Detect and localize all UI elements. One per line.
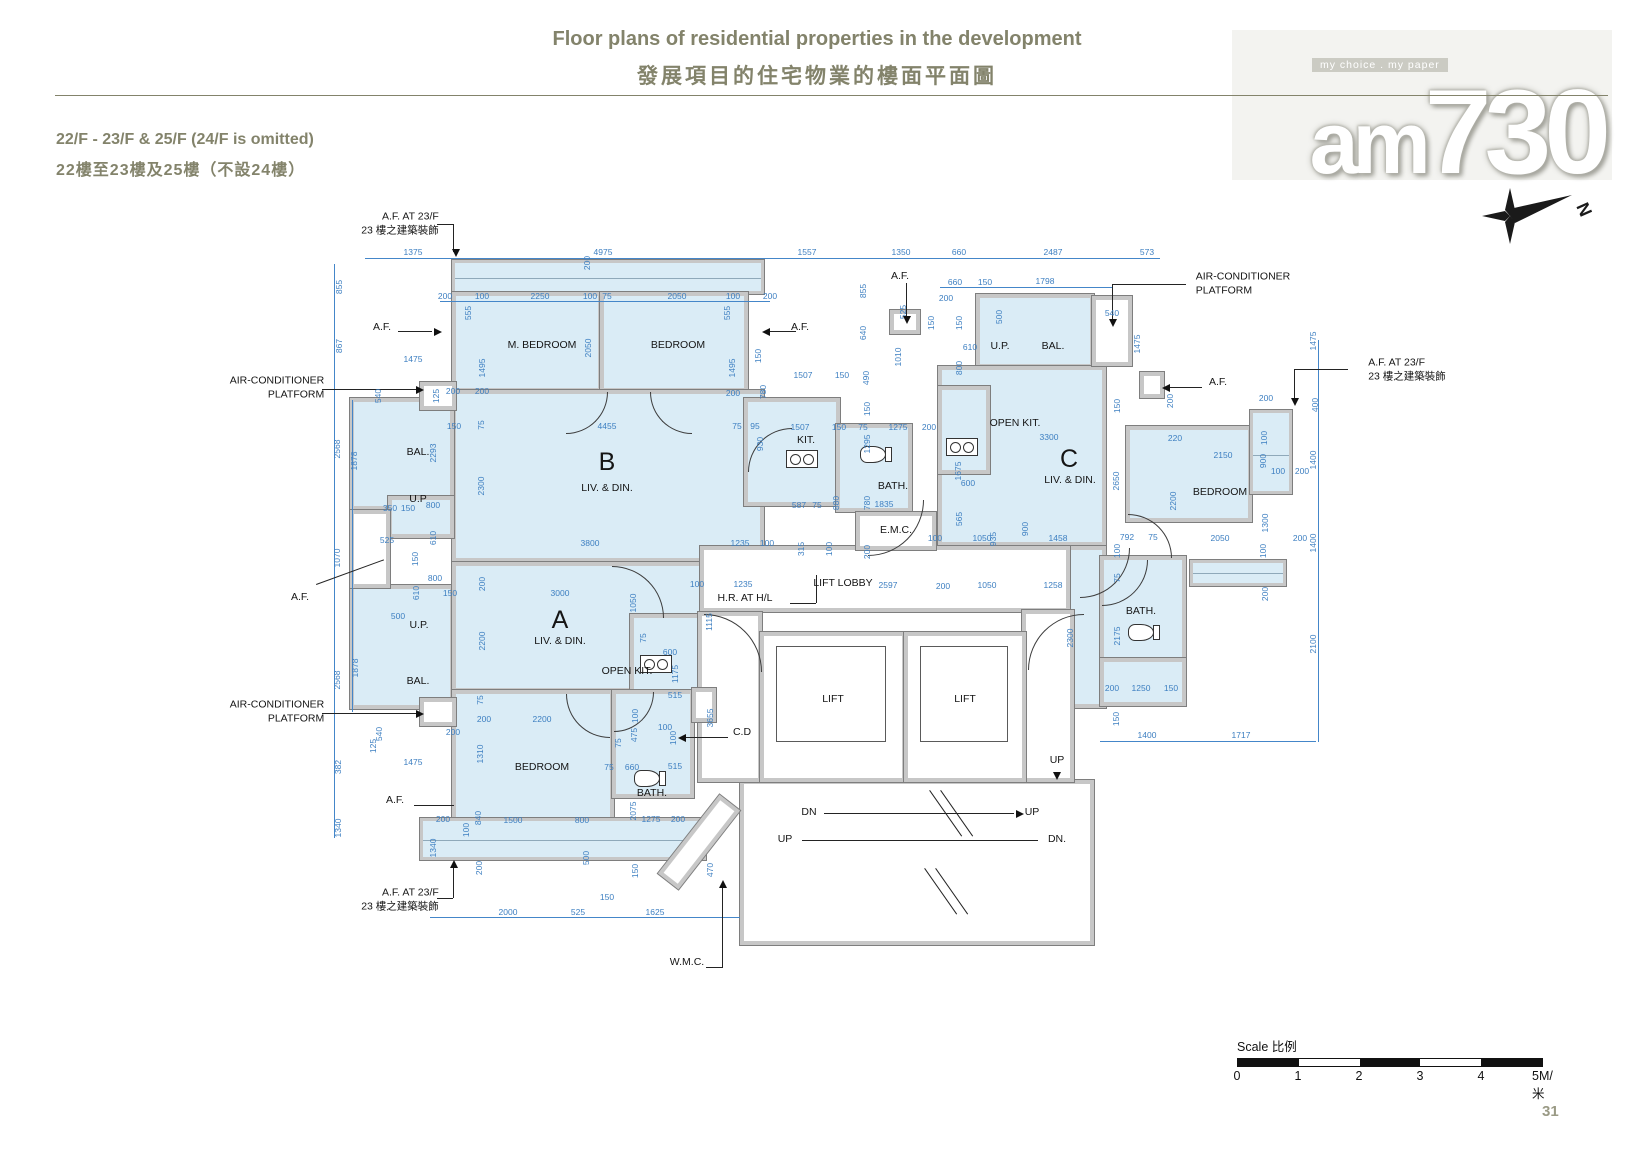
dimension-label: 500 — [581, 851, 591, 865]
leader-line — [437, 224, 453, 225]
leader-line — [824, 813, 1014, 814]
dimension-label: 200 — [922, 422, 936, 432]
dimension-label: 382 — [333, 760, 343, 774]
dimension-label: 2597 — [879, 580, 898, 590]
plan-label: AIR-CONDITIONER PLATFORM — [1196, 270, 1291, 297]
plan-label: BEDROOM — [515, 761, 569, 775]
dimension-label: 200 — [936, 581, 950, 591]
dimension-label: 150 — [1112, 399, 1122, 413]
dimension-label: 200 — [446, 386, 460, 396]
dimension-label: 1235 — [734, 579, 753, 589]
dimension-line — [430, 917, 740, 918]
ac-platform-left-bottom — [420, 698, 456, 726]
dimension-label: 3300 — [1040, 432, 1059, 442]
dimension-label: 660 — [948, 277, 962, 287]
dimension-label: 150 — [978, 277, 992, 287]
dimension-label: 2175 — [1112, 627, 1122, 646]
scalebar-tick: 3 — [1417, 1069, 1424, 1083]
dimension-label: 2050 — [1211, 533, 1230, 543]
plan-label: B — [599, 446, 616, 479]
plan-label: BEDROOM — [651, 339, 705, 353]
dimension-line — [940, 287, 1112, 288]
plan-label: LIV. & DIN. — [534, 635, 586, 649]
dimension-label: 800 — [575, 815, 589, 825]
dimension-label: 200 — [726, 388, 740, 398]
dimension-label: 4975 — [594, 247, 613, 257]
dimension-label: 1275 — [889, 422, 908, 432]
bedroom-c — [1126, 426, 1252, 522]
dimension-label: 1507 — [791, 422, 810, 432]
dimension-label: 792 — [1120, 532, 1134, 542]
dimension-label: 1375 — [404, 247, 423, 257]
arrowhead-icon — [450, 860, 458, 868]
dimension-label: 100 — [583, 291, 597, 301]
plan-label: M. BEDROOM — [508, 339, 577, 353]
dimension-label: 660 — [952, 247, 966, 257]
plan-label: DN. — [1048, 833, 1066, 847]
scalebar-tick: 2 — [1356, 1069, 1363, 1083]
dimension-label: 125 — [368, 739, 378, 753]
arrowhead-icon — [416, 386, 424, 394]
dimension-label: 100 — [824, 542, 834, 556]
dimension-label: 100 — [1112, 544, 1122, 558]
dimension-label: 1458 — [1049, 533, 1068, 543]
dimension-label: 200 — [1260, 587, 1270, 601]
header-divider — [55, 95, 1608, 96]
dimension-label: 100 — [1259, 431, 1269, 445]
dimension-label: 800 — [954, 361, 964, 375]
arrowhead-icon — [1016, 810, 1024, 818]
leader-line — [1294, 369, 1348, 370]
plan-label: U.P. — [409, 619, 428, 633]
page-number: 31 — [1542, 1103, 1559, 1120]
dimension-label: 150 — [630, 864, 640, 878]
plan-label: BATH. — [637, 787, 667, 801]
dimension-label: 1625 — [646, 907, 665, 917]
arrowhead-icon — [1291, 398, 1299, 406]
dimension-label: 1300 — [1260, 514, 1270, 533]
dimension-label: 470 — [705, 863, 715, 877]
scalebar-ticks: 012345M/米 — [1237, 1067, 1577, 1083]
plan-label: BATH. — [878, 480, 908, 494]
am730-logo: my choice . my paper am730 — [1232, 30, 1612, 180]
dimension-label: 1310 — [475, 745, 485, 764]
arrowhead-icon — [719, 880, 727, 888]
north-arrow: N — [1438, 178, 1608, 262]
plan-label: UP — [1025, 806, 1040, 820]
bay-window-right-c — [1250, 410, 1292, 494]
dimension-label: 855 — [334, 280, 344, 294]
dimension-label: 75 — [638, 633, 648, 642]
plan-label: LIFT — [822, 693, 844, 707]
leader-line — [1112, 284, 1186, 285]
dimension-label: 2293 — [428, 444, 438, 463]
dimension-label: 2200 — [1168, 492, 1178, 511]
plan-label: OPEN KIT. — [990, 417, 1041, 431]
plan-label: LIV. & DIN. — [581, 482, 633, 496]
dimension-label: 800 — [426, 500, 440, 510]
leader-line — [398, 331, 432, 332]
dimension-label: 150 — [753, 349, 763, 363]
dimension-label: 935 — [988, 532, 998, 546]
scalebar-segment — [1481, 1059, 1542, 1066]
dimension-label: 150 — [447, 421, 461, 431]
dimension-label: 200 — [438, 291, 452, 301]
dimension-label: 150 — [832, 422, 846, 432]
leader-line — [1166, 387, 1202, 388]
dimension-label: 1400 — [1308, 451, 1318, 470]
dimension-label: 1400 — [1138, 730, 1157, 740]
bay-window-bottom-c — [1190, 560, 1286, 586]
leader-line — [1294, 369, 1295, 401]
dimension-label: 1275 — [642, 814, 661, 824]
dimension-label: 930 — [755, 437, 765, 451]
dimension-label: 610 — [963, 342, 977, 352]
plan-label: A.F. — [386, 794, 404, 808]
dimension-label: 500 — [994, 310, 1004, 324]
arrowhead-icon — [434, 328, 442, 336]
plan-label: A — [552, 604, 569, 637]
toilet-icon — [1128, 624, 1154, 641]
leader-line — [322, 713, 418, 714]
scalebar-tick: 1 — [1295, 1069, 1302, 1083]
dimension-label: 75 — [475, 695, 485, 704]
stove-icon — [786, 450, 818, 468]
dimension-label: 515 — [668, 690, 682, 700]
dimension-label: 100 — [475, 291, 489, 301]
dimension-label: 610 — [428, 531, 438, 545]
plan-label: BEDROOM — [1193, 486, 1247, 500]
dimension-label: 100 — [928, 533, 942, 543]
dimension-label: 540 — [1105, 308, 1119, 318]
dimension-label: 1878 — [349, 452, 359, 471]
dimension-label: 2650 — [1111, 472, 1121, 491]
scalebar-end-label: 5M/米 — [1532, 1069, 1562, 1102]
dimension-label: 100 — [1258, 544, 1268, 558]
scalebar-segment — [1420, 1059, 1481, 1066]
plan-label: BAL. — [1042, 340, 1065, 354]
dimension-label: 610 — [411, 586, 421, 600]
plan-label: U.P — [409, 493, 427, 507]
plan-label: A.F. AT 23/F 23 樓之建築裝飾 — [361, 886, 439, 913]
dimension-label: 200 — [1105, 683, 1119, 693]
dimension-label: 1250 — [1132, 683, 1151, 693]
dimension-label: 125 — [431, 389, 441, 403]
dimension-label: 200 — [446, 727, 460, 737]
dimension-label: 75 — [613, 738, 623, 747]
arrowhead-icon — [762, 328, 770, 336]
dimension-label: 75 — [812, 500, 821, 510]
dimension-label: 150 — [954, 316, 964, 330]
dimension-label: 1475 — [404, 354, 423, 364]
plan-label: H.R. AT H/L — [717, 592, 772, 606]
dimension-label: 100 — [630, 709, 640, 723]
dimension-label: 100 — [1271, 466, 1285, 476]
dimension-label: 2300 — [1065, 629, 1075, 648]
dimension-label: 1258 — [1044, 580, 1063, 590]
dimension-label: 900 — [1258, 454, 1268, 468]
dimension-label: 75 — [1112, 573, 1122, 582]
dimension-label: 475 — [629, 728, 639, 742]
dimension-label: 573 — [1140, 247, 1154, 257]
dimension-label: 600 — [961, 478, 975, 488]
plan-label: OPEN KIT. — [602, 665, 653, 679]
dimension-label: 100 — [690, 579, 704, 589]
plan-label: E.M.C. — [880, 524, 912, 538]
dimension-label: 200 — [862, 545, 872, 559]
dimension-label: 1495 — [477, 359, 487, 378]
plan-label: BAL. — [407, 446, 430, 460]
leader-line — [322, 389, 418, 390]
plan-label: AIR-CONDITIONER PLATFORM — [230, 374, 325, 401]
dimension-label: 1235 — [731, 538, 750, 548]
dimension-label: 1878 — [350, 659, 360, 678]
plan-label: A.F. — [291, 591, 309, 605]
dimension-label: 780 — [862, 496, 872, 510]
balcony-b — [350, 398, 454, 510]
plan-label: C — [1060, 443, 1078, 476]
arrowhead-icon — [452, 249, 460, 257]
dimension-label: 565 — [954, 512, 964, 526]
leader-line — [802, 840, 1038, 841]
dimension-label: 150 — [1111, 712, 1121, 726]
dimension-label: 600 — [663, 647, 677, 657]
dimension-line — [440, 301, 770, 302]
dimension-label: 2050 — [583, 339, 593, 358]
dimension-label: 95 — [750, 421, 759, 431]
arrowhead-icon — [903, 316, 911, 324]
plan-label: LIFT — [954, 693, 976, 707]
dimension-label: 1295 — [862, 435, 872, 454]
dimension-label: 1070 — [332, 549, 342, 568]
dimension-label: 2568 — [332, 440, 342, 459]
bay-window-top-b — [452, 260, 764, 294]
dimension-label: 200 — [763, 291, 777, 301]
arrowhead-icon — [678, 734, 686, 742]
plan-label: A.F. — [373, 321, 391, 335]
plan-label: A.F. — [791, 321, 809, 335]
dimension-label: 1115 — [704, 613, 714, 631]
dimension-label: 400 — [1310, 398, 1320, 412]
dimension-label: 2050 — [668, 291, 687, 301]
stove-icon — [946, 438, 978, 456]
dimension-label: 2000 — [499, 907, 518, 917]
dimension-label: 1400 — [1308, 534, 1318, 553]
dimension-label: 75 — [476, 420, 486, 429]
leader-line — [722, 884, 723, 968]
dimension-label: 150 — [862, 402, 872, 416]
plan-label: UP — [778, 833, 793, 847]
dimension-label: 200 — [477, 577, 487, 591]
af-fin-c-right — [1140, 372, 1164, 398]
dimension-label: 867 — [334, 339, 344, 353]
dimension-label: 2487 — [1044, 247, 1063, 257]
dimension-label: 75 — [732, 421, 741, 431]
dimension-label: 525 — [380, 535, 394, 545]
plan-label: KIT. — [797, 434, 815, 448]
leader-line — [453, 224, 454, 252]
scalebar-label: Scale 比例 — [1237, 1036, 1597, 1055]
dimension-label: 3000 — [551, 588, 570, 598]
plan-label: A.F. AT 23/F 23 樓之建築裝飾 — [1368, 356, 1446, 383]
scalebar: Scale 比例 012345M/米 — [1237, 1036, 1597, 1083]
leader-line — [706, 967, 722, 968]
leader-line — [790, 603, 816, 604]
dimension-label: 1475 — [404, 757, 423, 767]
dimension-label: 200 — [939, 293, 953, 303]
dimension-label: 75 — [604, 762, 613, 772]
dimension-label: 100 — [668, 731, 678, 745]
dimension-label: 315 — [796, 542, 806, 556]
scalebar-segment — [1238, 1059, 1299, 1066]
af-platform-left — [350, 510, 390, 588]
plan-label: A.F. — [1209, 376, 1227, 390]
dimension-label: 640 — [858, 326, 868, 340]
plan-label: BATH. — [1126, 605, 1156, 619]
dimension-label: 1175 — [670, 665, 680, 683]
dimension-label: 1495 — [727, 359, 737, 378]
dimension-label: 800 — [428, 573, 442, 583]
dimension-label: 200 — [1259, 393, 1273, 403]
dimension-label: 855 — [858, 284, 868, 298]
dimension-label: 150 — [926, 316, 936, 330]
dimension-label: 900 — [1020, 522, 1030, 536]
dimension-label: 555 — [722, 306, 732, 320]
dimension-line — [365, 258, 1160, 259]
dimension-label: 150 — [600, 892, 614, 902]
dimension-label: 4455 — [598, 421, 617, 431]
dimension-label: 1717 — [1232, 730, 1251, 740]
dimension-label: 555 — [463, 306, 473, 320]
scalebar-tick: 4 — [1478, 1069, 1485, 1083]
dimension-label: 150 — [443, 588, 457, 598]
plan-label: A.F. AT 23/F 23 樓之建築裝飾 — [361, 210, 439, 237]
logo-brand: am730 — [1310, 86, 1604, 180]
north-star-spike — [1482, 211, 1510, 221]
plan-label: LIV. & DIN. — [1044, 474, 1096, 488]
arrowhead-icon — [1162, 384, 1170, 392]
dimension-label: 200 — [436, 814, 450, 824]
dimension-label: 2150 — [1214, 450, 1233, 460]
store-below-bath-c — [1100, 658, 1186, 706]
dimension-label: 200 — [1165, 394, 1175, 408]
balcony-c — [976, 294, 1094, 368]
dimension-label: 75 — [858, 422, 867, 432]
dimension-label: 840 — [473, 811, 483, 825]
dimension-label: 100 — [461, 823, 471, 837]
plan-label: DN — [801, 806, 816, 820]
dimension-label: 150 — [835, 370, 849, 380]
dimension-label: 3655 — [705, 709, 715, 728]
dimension-label: 515 — [668, 761, 682, 771]
scalebar-tick: 0 — [1234, 1069, 1241, 1083]
dimension-label: 200 — [474, 861, 484, 875]
dimension-label: 880 — [831, 496, 841, 510]
dimension-label: 2200 — [533, 714, 552, 724]
dimension-label: 540 — [373, 389, 383, 403]
dimension-label: 200 — [477, 714, 491, 724]
leader-line — [437, 898, 453, 899]
dimension-label: 350 — [383, 503, 397, 513]
dimension-label: 525 — [571, 907, 585, 917]
plan-label: AIR-CONDITIONER PLATFORM — [230, 698, 325, 725]
plan-label: A.F. — [891, 270, 909, 284]
dimension-label: 587 — [792, 500, 806, 510]
dimension-label: 100 — [726, 291, 740, 301]
leader-line — [682, 737, 728, 738]
dimension-label: 1557 — [798, 247, 817, 257]
dimension-label: 200 — [1293, 533, 1307, 543]
dimension-label: 780 — [758, 385, 768, 399]
dimension-label: 200 — [582, 256, 592, 270]
plan-label: C.D — [733, 726, 751, 740]
brochure-page: Floor plans of residential properties in… — [0, 0, 1634, 1152]
dimension-label: 150 — [1164, 683, 1178, 693]
dimension-label: 1798 — [1036, 276, 1055, 286]
scalebar-segments — [1237, 1058, 1543, 1067]
dimension-label: 220 — [1168, 433, 1182, 443]
dimension-label: 2200 — [477, 632, 487, 651]
dimension-label: 2250 — [531, 291, 550, 301]
dimension-label: 2568 — [332, 671, 342, 690]
north-needle — [1510, 195, 1572, 223]
arrowhead-icon — [1109, 319, 1117, 327]
logo-brand-am: am — [1310, 93, 1425, 192]
dimension-label: 500 — [391, 611, 405, 621]
open-kitchen-c — [938, 386, 990, 474]
dimension-label: 75 — [602, 291, 611, 301]
plan-label: BAL. — [407, 675, 430, 689]
scalebar-segment — [1360, 1059, 1421, 1066]
dimension-label: 1010 — [893, 348, 903, 367]
dimension-label: 2075 — [628, 802, 638, 821]
dimension-label: 1350 — [892, 247, 911, 257]
toilet-icon — [634, 770, 660, 787]
dimension-label: 1050 — [978, 580, 997, 590]
stairwell — [740, 780, 1094, 945]
dimension-label: 490 — [861, 371, 871, 385]
dimension-label: 200 — [475, 386, 489, 396]
dimension-label: 150 — [410, 552, 420, 566]
dimension-label: 75 — [1148, 532, 1157, 542]
dimension-label: 1507 — [794, 370, 813, 380]
leader-line — [414, 805, 454, 806]
dimension-label: 1475 — [1132, 335, 1142, 354]
plan-label: LIFT LOBBY — [813, 577, 872, 591]
dimension-label: 1835 — [875, 499, 894, 509]
dimension-label: 1050 — [628, 594, 638, 613]
dimension-label: 1500 — [504, 815, 523, 825]
dimension-line — [1100, 741, 1316, 742]
dimension-label: 100 — [760, 538, 774, 548]
arrowhead-icon — [416, 710, 424, 718]
plan-label: U.P. — [990, 340, 1009, 354]
leader-line — [453, 866, 454, 898]
plan-label: UP — [1050, 754, 1065, 768]
dimension-label: 1475 — [1308, 332, 1318, 351]
dimension-label: 1340 — [428, 839, 438, 858]
scalebar-segment — [1299, 1059, 1360, 1066]
dimension-label: 2300 — [476, 477, 486, 496]
arrowhead-icon — [1053, 772, 1061, 780]
dimension-label: 1340 — [333, 819, 343, 838]
dimension-label: 200 — [671, 814, 685, 824]
dimension-label: 660 — [625, 762, 639, 772]
north-label: N — [1572, 199, 1596, 219]
balcony-a — [350, 585, 454, 709]
dimension-label: 200 — [1295, 466, 1309, 476]
dimension-label: 2100 — [1308, 635, 1318, 654]
